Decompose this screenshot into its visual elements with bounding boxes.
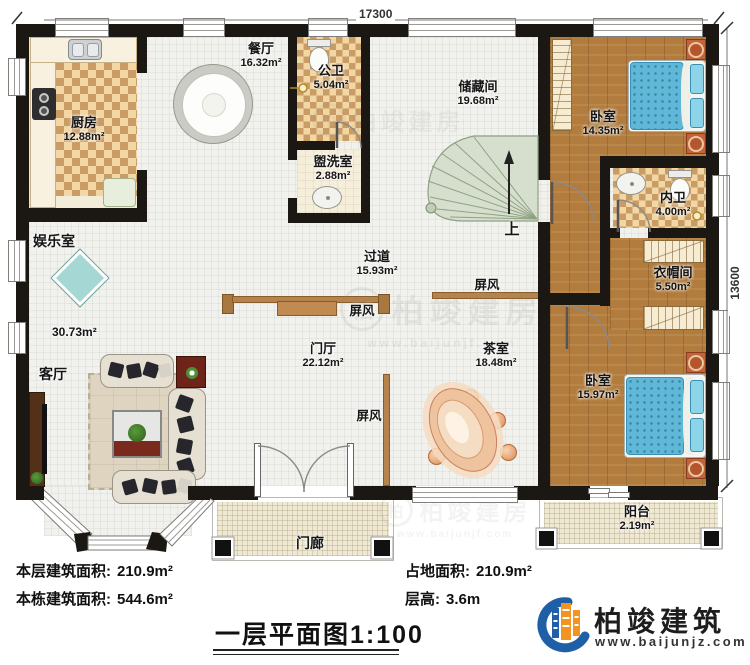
pillow [158,363,172,378]
entry-door-leaf-right [347,443,354,497]
wall-bath-right [361,37,370,223]
room-label-public-bath: 公卫5.04m² [314,64,349,91]
tea-stool [500,444,517,461]
sink-drain [326,196,330,200]
room-label-kitchen: 厨房12.88m² [64,116,105,143]
room-label-bedroom-bottom: 卧室15.97m² [578,374,619,401]
room-label-inner-bath: 内卫4.00m² [656,191,691,218]
pillow [176,415,194,433]
stairs-up-label: 上 [504,218,519,239]
nightstand [686,458,706,479]
corridor-wood-floor [550,156,603,293]
flower-icon [186,367,198,379]
wall-bottom-3 [514,486,590,500]
window-storage-top [408,18,516,37]
entertainment-area-value: 30.73m² [52,325,97,339]
wall-main-vertical-top [538,37,550,180]
window-kitchen-top [55,18,109,37]
plan-title: 一层平面图1:100 [215,615,424,651]
window-publicbath-top [308,18,348,37]
wall-bedroom-bottom-top [550,293,610,305]
room-label-tearoom: 茶室18.48m² [476,342,517,369]
sofa-right [168,388,206,480]
sofa-top [100,354,174,388]
pillow [176,438,193,455]
screen-divider-3-bar [383,374,390,486]
plant-small [31,472,43,484]
room-label-dining: 餐厅16.32m² [241,42,282,69]
sink-drain [630,182,634,186]
nightstand [686,352,706,373]
plant [128,424,146,442]
wall-ensuite-bottom-a [610,228,620,238]
room-label-bedroom-top: 卧室14.35m² [583,110,624,137]
screen-divider-1-panel [277,301,337,316]
stat-floor-height-label: 层高: [405,591,440,608]
wall-bath-divider [297,141,335,150]
dimension-right: 13600 [728,250,742,316]
brand-website: www.baijunjz.com [595,634,747,649]
nightstand-lamp [688,355,704,371]
wall-main-vertical-bottom [538,222,550,486]
wall-ensuite-bottom-b [648,228,718,238]
balcony-slider-1 [588,488,610,494]
screen-divider-2-bar [432,292,540,299]
window-dining-top [183,18,225,37]
stat-floor-area-value: 210.9m² [117,563,173,580]
wardrobe-cloakroom-top [643,240,704,263]
stove [32,88,56,120]
dimension-top: 17300 [356,7,395,21]
washroom-sink [312,186,342,209]
nightstand [686,39,706,60]
floor-plan: 17300 13600 厨房12.88m² 餐厅16.32m² 公卫5.04m²… [0,0,750,665]
burner [39,93,49,103]
brand-logo-icon [536,596,590,656]
bed-pillow [690,64,704,94]
dining-table-center [202,93,226,117]
window-living-left [8,322,26,354]
room-label-storage: 储藏间19.68m² [458,80,499,107]
room-label-living: 客厅 [39,364,67,384]
pillow [176,477,192,494]
entry-door-leaf-left [254,443,261,497]
window-kitchen-left [8,58,26,96]
dining-table [173,64,253,144]
stat-floor-height-value: 3.6m [446,591,480,608]
plan-title-scale: 1:100 [350,621,424,649]
pillow [108,362,125,379]
sink-bowl [72,43,84,57]
pillow [175,394,194,413]
coffee-table [112,410,162,458]
wall-bath-left-top [288,37,297,160]
side-table [176,356,206,388]
stat-floor-area: 本层建筑面积:210.9m² [16,560,173,581]
sofa-bottom [112,470,196,504]
tea-stool [489,412,506,429]
stat-land-area: 占地面积:210.9m² [405,560,532,581]
room-label-entertainment: 娱乐室 [33,231,75,251]
window-innerbath-right [712,175,730,217]
pillow [161,479,177,495]
sink-bowl [87,43,99,57]
screen-label-2: 屏风 [474,274,499,293]
wall-bottom-4 [628,486,718,500]
plan-title-text: 一层平面图 [215,621,350,649]
innerbath-sink [616,172,646,195]
stat-land-area-value: 210.9m² [476,563,532,580]
room-label-corridor: 过道15.93m² [357,250,398,277]
stat-floor-area-label: 本层建筑面积: [16,563,111,580]
room-label-foyer: 门厅22.12m² [303,342,344,369]
nightstand [686,133,706,154]
pillow [142,361,160,379]
tv [42,404,47,474]
wall-kitchen-right-top [137,37,147,73]
wall-bottom-1 [196,486,258,500]
title-underline-2 [213,654,399,655]
screen-label-3: 屏风 [356,405,381,424]
room-label-balcony: 阳台2.19m² [620,505,655,532]
window-cloakroom-right [712,310,730,354]
stat-floor-height: 层高:3.6m [405,588,480,609]
wall-bottom-2 [350,486,416,500]
stat-building-area-value: 544.6m² [117,591,173,608]
wall-kitchen-bottom [16,208,147,222]
stat-land-area-label: 占地面积: [405,563,470,580]
nightstand-lamp [688,136,704,152]
tea-stool [462,389,479,406]
nightstand-lamp [688,42,704,58]
screen-label-1: 屏风 [349,300,374,319]
bed-top-mattress [630,62,684,130]
wall-bath-bottom [288,213,370,223]
room-label-washroom: 盥洗室2.88m² [313,155,352,182]
kitchen-sink [68,39,102,60]
coffee-table-shelf [114,441,160,456]
balcony-slider-2 [608,492,630,498]
room-label-cloakroom: 衣帽间5.50m² [653,266,692,293]
toilet [668,170,692,178]
fridge [103,178,136,207]
window-bedroomtop-top [593,18,703,37]
room-label-porch: 门廊 [296,536,324,552]
nightstand-lamp [688,461,704,477]
toilet [307,39,331,47]
bed-pillow [690,98,704,128]
kitchen-counter-left [30,62,56,208]
window-tearoom-bottom [412,487,518,503]
wardrobe-bedroom-top [552,39,572,131]
stat-building-area-label: 本栋建筑面积: [16,591,111,608]
burner [39,106,49,116]
bed-pillow [690,380,704,414]
pillow [126,363,142,379]
pillow [121,478,138,495]
window-entertainment-left [8,240,26,282]
title-underline [213,649,399,651]
wall-ensuite-left [600,156,610,238]
window-bedroomtop-right [712,65,730,153]
wardrobe-cloakroom-bottom [643,306,704,330]
wall-bedroom-top-bottom [608,156,718,168]
tea-stool [428,448,445,465]
pillow [142,478,159,495]
bed-pillow [690,418,704,452]
bed-bottom-mattress [626,377,684,455]
stat-building-area: 本栋建筑面积:544.6m² [16,588,173,609]
screen-divider-1-cap [378,294,390,314]
window-bedroombottom-right [712,382,730,460]
